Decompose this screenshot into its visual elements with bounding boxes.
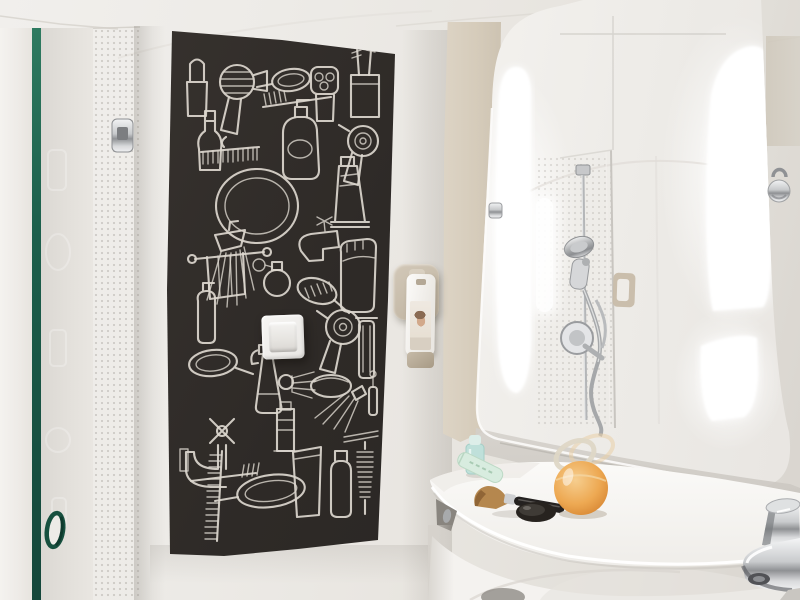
brush-handle xyxy=(513,496,565,514)
reflected-brush-tip xyxy=(551,454,569,464)
tap-handle-top xyxy=(765,497,800,515)
tap-handle-shade xyxy=(762,508,776,546)
dispenser-cap[interactable] xyxy=(407,352,434,368)
mint-tube[interactable] xyxy=(455,450,505,485)
hook-disc xyxy=(768,180,790,202)
brush-shadow xyxy=(492,510,548,518)
tap-aerator xyxy=(748,573,770,585)
teal-bottle-shadow xyxy=(466,472,488,478)
shower-glass-front xyxy=(0,28,33,600)
brush-ferrule xyxy=(503,493,516,505)
tap-spout-underside xyxy=(743,566,792,590)
counter-rim-shadow xyxy=(434,493,800,569)
shower-glass-frost xyxy=(41,28,93,600)
under-basin-shadow xyxy=(481,588,525,600)
black-compact[interactable] xyxy=(516,502,556,522)
glass-green-edge xyxy=(32,28,41,600)
counter-rim-highlight xyxy=(432,487,800,564)
bathroom-photo xyxy=(0,0,800,600)
tiled-wall-through-glass xyxy=(93,28,140,600)
basin-bowl-shade xyxy=(540,568,798,600)
dispenser-portrait-label xyxy=(410,301,431,350)
bottle-neck xyxy=(571,463,591,471)
basin-front xyxy=(428,536,800,600)
beige-wall-right-sliver xyxy=(766,36,800,146)
dispenser-hanger-slot xyxy=(416,279,426,285)
tap-base xyxy=(780,588,800,600)
tap-spout xyxy=(743,538,800,591)
makeup-brush[interactable] xyxy=(474,486,565,514)
amber-bottle-body xyxy=(554,461,608,515)
tap-aerator-inner xyxy=(753,576,765,582)
amber-bottle-shadow xyxy=(559,509,607,519)
reflected-slim-light xyxy=(536,198,553,312)
hook-ring xyxy=(773,170,786,178)
mint-travel-bottle[interactable] xyxy=(466,435,484,474)
tap-handle-cone[interactable] xyxy=(762,503,800,545)
tap-spout-highlight xyxy=(747,547,772,563)
light-switch-rocker[interactable] xyxy=(268,322,297,353)
hook-disc-shade xyxy=(772,195,786,198)
basin-curve-line xyxy=(470,570,680,600)
light-switch[interactable] xyxy=(261,314,305,359)
